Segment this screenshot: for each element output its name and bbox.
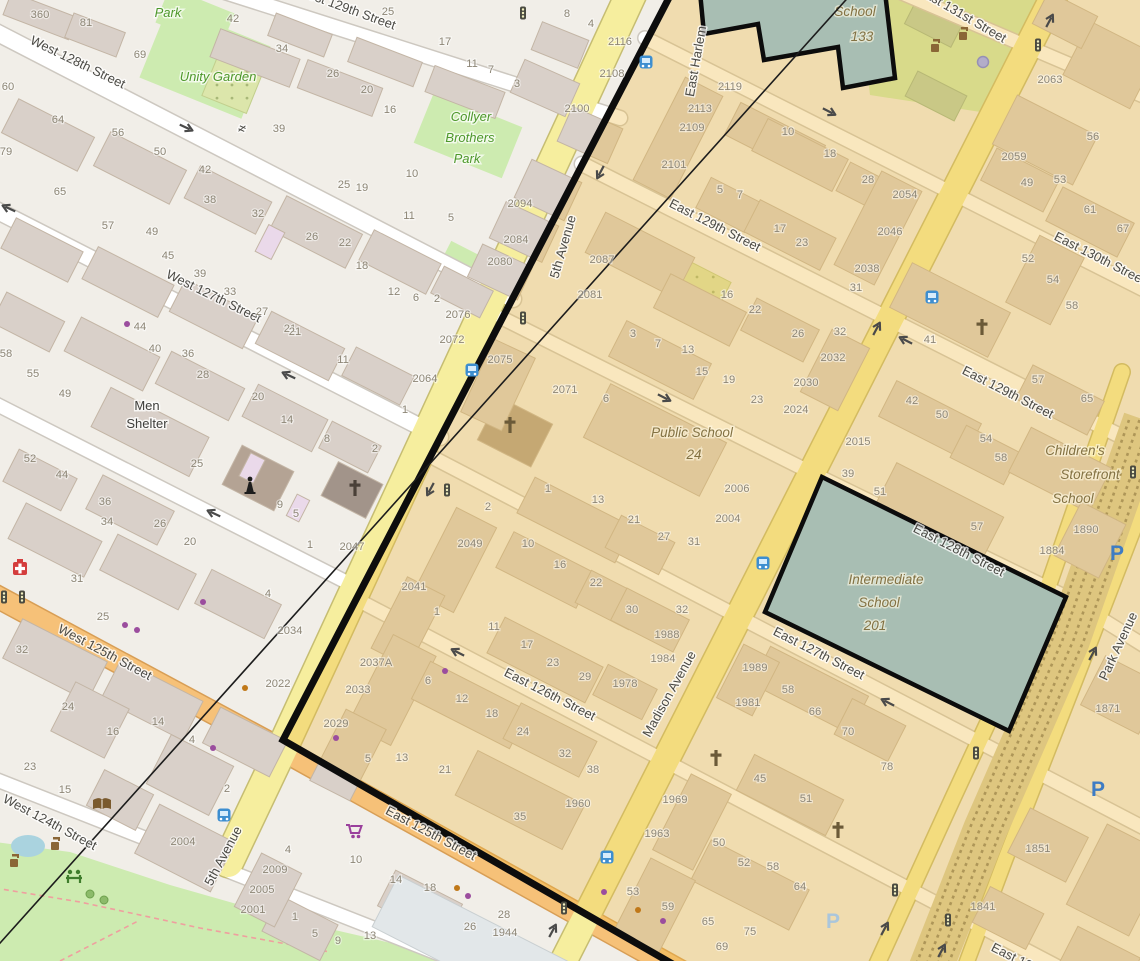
traffic-signal-icon <box>444 484 450 497</box>
house-number: 52 <box>738 857 750 869</box>
house-number: 2004 <box>171 836 196 848</box>
house-number: 65 <box>54 186 66 198</box>
house-number: 50 <box>936 409 948 421</box>
house-number: 1 <box>434 606 440 618</box>
house-number: 2094 <box>508 198 533 210</box>
house-number: 10 <box>406 168 418 180</box>
house-number: 53 <box>1054 174 1066 186</box>
house-number: 22 <box>339 237 351 249</box>
traffic-signal-icon <box>945 914 951 927</box>
house-number: 39 <box>273 123 285 135</box>
house-number: 2005 <box>250 884 275 896</box>
house-number: 1963 <box>645 828 670 840</box>
shop-dot-icon <box>454 885 460 891</box>
house-number: 25 <box>382 6 394 18</box>
house-number: 1851 <box>1026 843 1051 855</box>
house-number: 2075 <box>488 354 513 366</box>
house-number: 16 <box>554 559 566 571</box>
house-number: 8 <box>324 433 330 445</box>
house-number: 360 <box>31 9 50 21</box>
house-number: 29 <box>579 671 591 683</box>
garden-dot <box>246 97 249 100</box>
place-label: Collyer <box>451 109 492 124</box>
house-number: 64 <box>794 881 806 893</box>
house-number: 32 <box>252 208 264 220</box>
house-number: 32 <box>559 748 571 760</box>
house-number: 19 <box>356 182 368 194</box>
house-number: 17 <box>521 639 533 651</box>
house-number: 5 <box>312 928 318 940</box>
house-number: 33 <box>224 286 236 298</box>
house-number: 19 <box>723 374 735 386</box>
shop-dot-icon <box>134 627 140 633</box>
house-number: 56 <box>112 127 124 139</box>
house-number: 38 <box>587 764 599 776</box>
map-canvas[interactable]: IntermediateSchool201School133PPP≠West 1… <box>0 0 1140 961</box>
shop-dot-icon <box>242 685 248 691</box>
house-number: 36 <box>99 496 111 508</box>
house-number: 2047 <box>340 541 365 553</box>
house-number: 21 <box>289 326 301 338</box>
house-number: 7 <box>655 338 661 350</box>
shop-dot-icon <box>660 918 666 924</box>
house-number: 64 <box>52 114 64 126</box>
house-number: 56 <box>1087 131 1099 143</box>
house-number: 45 <box>162 250 174 262</box>
bus-stop-icon <box>926 291 939 304</box>
house-number: 1989 <box>743 662 768 674</box>
house-number: 23 <box>547 657 559 669</box>
house-number: 11 <box>466 58 478 70</box>
traffic-signal-icon <box>892 884 898 897</box>
shop-dot-icon <box>122 622 128 628</box>
house-number: 39 <box>194 268 206 280</box>
house-number: 23 <box>24 761 36 773</box>
house-number: 23 <box>751 394 763 406</box>
house-number: 2084 <box>504 234 529 246</box>
house-number: 2116 <box>608 36 632 48</box>
shop-dot-icon <box>601 889 607 895</box>
house-number: 4 <box>285 844 291 856</box>
house-number: 10 <box>522 538 534 550</box>
house-number: 2 <box>224 783 230 795</box>
house-number: 38 <box>204 194 216 206</box>
place-label: Park <box>454 151 482 166</box>
house-number: 10 <box>782 126 794 138</box>
map-label: 201 <box>863 618 887 633</box>
house-number: 34 <box>276 43 288 55</box>
house-number: 2119 <box>718 81 742 93</box>
traffic-signal-icon <box>19 591 25 604</box>
house-number: 2032 <box>821 352 846 364</box>
house-number: 66 <box>809 706 821 718</box>
house-number: 65 <box>702 916 714 928</box>
house-number: 1 <box>292 911 298 923</box>
house-number: 24 <box>62 701 74 713</box>
house-number: 49 <box>1021 177 1033 189</box>
house-number: 5 <box>293 508 299 520</box>
house-number: 51 <box>800 793 812 805</box>
house-number: 5 <box>448 212 454 224</box>
house-number: 9 <box>335 935 341 947</box>
house-number: 27 <box>256 306 268 318</box>
place-label: Public School <box>651 425 734 440</box>
house-number: 2004 <box>716 513 741 525</box>
house-number: 3 <box>514 78 520 90</box>
house-number: 2022 <box>266 678 291 690</box>
traffic-signal-icon <box>1130 466 1136 479</box>
house-number: 18 <box>486 708 498 720</box>
house-number: 13 <box>364 930 376 942</box>
shop-dot-icon <box>635 907 641 913</box>
house-number: 2087 <box>590 254 615 266</box>
bus-stop-icon <box>466 364 479 377</box>
house-number: 31 <box>71 573 83 585</box>
garden-dot <box>216 84 219 87</box>
map-label: Intermediate <box>848 572 923 587</box>
house-number: 2101 <box>662 159 687 171</box>
house-number: 2046 <box>878 226 903 238</box>
shop-dot-icon <box>442 668 448 674</box>
bus-stop-icon <box>218 809 231 822</box>
house-number: 26 <box>306 231 318 243</box>
parking-icon: P <box>1110 542 1124 565</box>
parking-icon: P <box>826 910 840 933</box>
house-number: 42 <box>906 395 918 407</box>
house-number: 79 <box>0 146 12 158</box>
house-number: 32 <box>834 326 846 338</box>
place-label: Storefront <box>1060 467 1121 482</box>
house-number: 2024 <box>784 404 809 416</box>
house-number: 25 <box>97 611 109 623</box>
house-number: 2064 <box>413 373 438 385</box>
house-number: 57 <box>1032 374 1044 386</box>
house-number: 17 <box>774 223 786 235</box>
house-number: 2059 <box>1002 151 1027 163</box>
osm-map[interactable]: IntermediateSchool201School133PPP≠West 1… <box>0 0 1140 961</box>
house-number: 23 <box>796 237 808 249</box>
house-number: 28 <box>498 909 510 921</box>
house-number: 26 <box>792 328 804 340</box>
place-label: 24 <box>685 447 701 462</box>
shop-dot-icon <box>210 745 216 751</box>
house-number: 1 <box>307 539 313 551</box>
shop-dot-icon <box>200 599 206 605</box>
house-number: 6 <box>603 393 609 405</box>
poi-circle-icon <box>978 57 989 68</box>
house-number: 1890 <box>1074 524 1099 536</box>
house-number: 2080 <box>488 256 513 268</box>
house-number: 21 <box>439 764 451 776</box>
house-number: 18 <box>356 260 368 272</box>
tree-icon <box>86 890 94 898</box>
house-number: 2029 <box>324 718 349 730</box>
place-label: Men <box>134 398 159 413</box>
house-number: 1978 <box>613 678 638 690</box>
house-number: 24 <box>517 726 529 738</box>
house-number: 1944 <box>493 927 518 939</box>
house-number: 25 <box>191 458 203 470</box>
house-number: 34 <box>101 516 113 528</box>
map-label: 133 <box>851 29 874 44</box>
house-number: 22 <box>590 577 602 589</box>
house-number: 58 <box>995 452 1007 464</box>
house-number: 18 <box>424 882 436 894</box>
house-number: 54 <box>980 433 992 445</box>
house-number: 16 <box>384 104 396 116</box>
house-number: 50 <box>154 146 166 158</box>
house-number: 49 <box>146 226 158 238</box>
house-number: 54 <box>1047 274 1059 286</box>
house-number: 26 <box>327 68 339 80</box>
house-number: 17 <box>439 36 451 48</box>
house-number: 42 <box>199 164 211 176</box>
house-number: 49 <box>59 388 71 400</box>
house-number: 55 <box>27 368 39 380</box>
house-number: 70 <box>842 726 854 738</box>
house-number: 26 <box>154 518 166 530</box>
shop-dot-icon <box>333 735 339 741</box>
house-number: 2034 <box>278 625 303 637</box>
house-number: 2 <box>372 443 378 455</box>
shop-dot-icon <box>465 893 471 899</box>
map-label: School <box>858 595 900 610</box>
house-number: 5 <box>365 753 371 765</box>
house-number: 1984 <box>651 653 676 665</box>
house-number: 8 <box>564 8 570 20</box>
house-number: 14 <box>152 716 164 728</box>
place-label: Children's <box>1045 443 1105 458</box>
house-number: 22 <box>749 304 761 316</box>
house-number: 50 <box>713 837 725 849</box>
house-number: 65 <box>1081 393 1093 405</box>
house-number: 1 <box>545 483 551 495</box>
house-number: 42 <box>227 13 239 25</box>
house-number: 2063 <box>1038 74 1063 86</box>
house-number: 15 <box>696 366 708 378</box>
house-number: 2033 <box>346 684 371 696</box>
house-number: 10 <box>350 854 362 866</box>
house-number: 1969 <box>663 794 688 806</box>
place-label: Park <box>155 5 183 20</box>
house-number: 2 <box>485 501 491 513</box>
house-number: 44 <box>134 321 146 333</box>
house-number: 58 <box>1066 300 1078 312</box>
traffic-signal-icon <box>1 591 7 604</box>
house-number: 41 <box>924 334 936 346</box>
house-number: 2015 <box>846 436 871 448</box>
house-number: 52 <box>1022 253 1034 265</box>
house-number: 18 <box>824 148 836 160</box>
house-number: 75 <box>744 926 756 938</box>
house-number: 36 <box>182 348 194 360</box>
house-number: 2113 <box>688 103 712 115</box>
house-number: 32 <box>676 604 688 616</box>
house-number: 2049 <box>458 538 483 550</box>
house-number: 67 <box>1117 223 1129 235</box>
house-number: 4 <box>588 18 594 30</box>
house-number: 20 <box>252 391 264 403</box>
house-number: 2037A <box>360 657 393 669</box>
house-number: 6 <box>413 292 419 304</box>
house-number: 27 <box>658 531 670 543</box>
house-number: 13 <box>396 752 408 764</box>
house-number: 30 <box>626 604 638 616</box>
house-number: 60 <box>2 81 14 93</box>
house-number: 15 <box>59 784 71 796</box>
house-number: 2071 <box>553 384 578 396</box>
house-number: 7 <box>737 189 743 201</box>
house-number: 2030 <box>794 377 819 389</box>
house-number: 78 <box>881 761 893 773</box>
house-number: 57 <box>102 220 114 232</box>
traffic-signal-icon <box>1035 39 1041 52</box>
house-number: 4 <box>189 734 195 746</box>
place-label: Brothers <box>445 130 495 145</box>
house-number: 2009 <box>263 864 288 876</box>
house-number: 5 <box>717 184 723 196</box>
house-number: 2108 <box>600 68 625 80</box>
house-number: 26 <box>464 921 476 933</box>
house-number: 1841 <box>971 901 996 913</box>
house-number: 31 <box>850 282 862 294</box>
house-number: 4 <box>265 588 271 600</box>
house-number: 51 <box>874 486 886 498</box>
house-number: 12 <box>456 693 468 705</box>
tree-icon <box>100 896 108 904</box>
house-number: 69 <box>716 941 728 953</box>
house-number: 25 <box>338 179 350 191</box>
house-number: 2006 <box>725 483 750 495</box>
house-number: 2081 <box>578 289 603 301</box>
house-number: 2 <box>434 293 440 305</box>
house-number: 1 <box>402 404 408 416</box>
bus-stop-icon <box>601 851 614 864</box>
house-number: 58 <box>782 684 794 696</box>
house-number: 2100 <box>565 103 590 115</box>
house-number: 58 <box>0 348 12 360</box>
house-number: 81 <box>80 17 92 29</box>
house-number: 6 <box>425 675 431 687</box>
house-number: 39 <box>842 468 854 480</box>
house-number: 13 <box>682 344 694 356</box>
place-label: Unity Garden <box>180 69 257 84</box>
house-number: 2038 <box>855 263 880 275</box>
house-number: 61 <box>1084 204 1096 216</box>
house-number: 1981 <box>736 697 761 709</box>
house-number: 44 <box>56 469 68 481</box>
house-number: 11 <box>337 354 349 366</box>
garden-dot <box>246 84 249 87</box>
house-number: 9 <box>277 499 283 511</box>
house-number: 1988 <box>655 629 680 641</box>
house-number: 2072 <box>440 334 465 346</box>
place-label: School <box>1052 491 1094 506</box>
traffic-signal-icon <box>561 902 567 915</box>
house-number: 40 <box>149 343 161 355</box>
garden-dot <box>231 97 234 100</box>
garden-dot <box>231 84 234 87</box>
bus-stop-icon <box>757 557 770 570</box>
parking-icon: P <box>1091 778 1105 801</box>
house-number: 14 <box>281 414 293 426</box>
house-number: 69 <box>134 49 146 61</box>
house-number: 32 <box>16 644 28 656</box>
pond <box>11 835 45 857</box>
house-number: 3 <box>630 328 636 340</box>
traffic-signal-icon <box>520 7 526 20</box>
traffic-signal-icon <box>520 312 526 325</box>
house-number: 31 <box>688 536 700 548</box>
house-number: 20 <box>184 536 196 548</box>
house-number: 52 <box>24 453 36 465</box>
garden-dot <box>216 97 219 100</box>
house-number: 2001 <box>241 904 266 916</box>
house-number: 2109 <box>680 122 705 134</box>
house-number: 2054 <box>893 189 918 201</box>
house-number: 2076 <box>446 309 471 321</box>
house-number: 1960 <box>566 798 591 810</box>
house-number: 14 <box>390 874 402 886</box>
house-number: 59 <box>662 901 674 913</box>
house-number: 16 <box>107 726 119 738</box>
house-number: 11 <box>488 621 500 633</box>
house-number: 57 <box>971 521 983 533</box>
house-number: 1884 <box>1040 545 1065 557</box>
house-number: 7 <box>488 64 494 76</box>
house-number: 58 <box>767 861 779 873</box>
house-number: 21 <box>628 514 640 526</box>
house-number: 28 <box>197 369 209 381</box>
house-number: 20 <box>361 84 373 96</box>
house-number: 53 <box>627 886 639 898</box>
house-number: 45 <box>754 773 766 785</box>
place-label: Shelter <box>126 416 168 431</box>
house-number: 1871 <box>1096 703 1121 715</box>
house-number: 13 <box>592 494 604 506</box>
traffic-signal-icon <box>973 747 979 760</box>
house-number: 35 <box>514 811 526 823</box>
house-number: 16 <box>721 289 733 301</box>
bus-stop-icon <box>640 56 653 69</box>
shop-dot-icon <box>124 321 130 327</box>
house-number: 12 <box>388 286 400 298</box>
house-number: 28 <box>862 174 874 186</box>
house-number: 2041 <box>402 581 427 593</box>
house-number: 11 <box>403 210 415 222</box>
